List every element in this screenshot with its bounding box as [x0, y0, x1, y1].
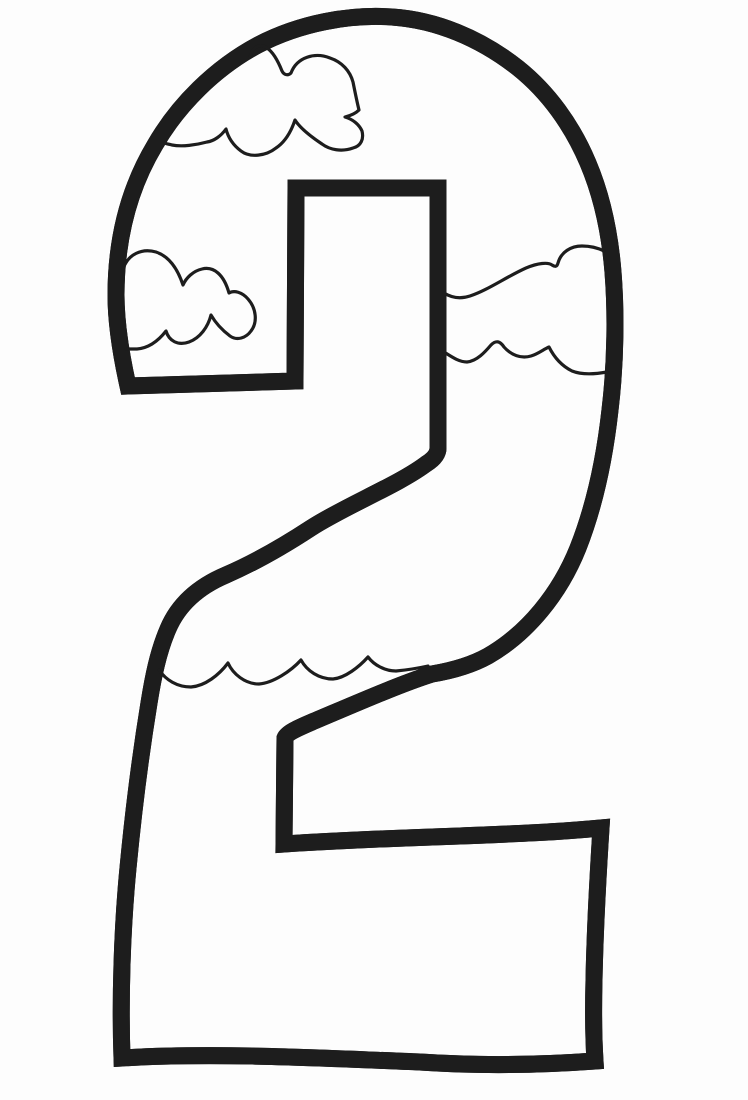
cloud-left-icon — [123, 251, 255, 349]
number-2-outline — [116, 16, 615, 1064]
cloud-right-top-line — [444, 246, 604, 298]
coloring-page-number-2-artwork: 2 — [0, 0, 748, 1100]
cloud-right-bottom-line — [444, 342, 607, 374]
number-2-outline-inner-gap — [116, 16, 615, 1064]
coloring-page: Coloring page line art of a large outlin… — [0, 0, 748, 1100]
number-2-glyph — [116, 16, 615, 1064]
